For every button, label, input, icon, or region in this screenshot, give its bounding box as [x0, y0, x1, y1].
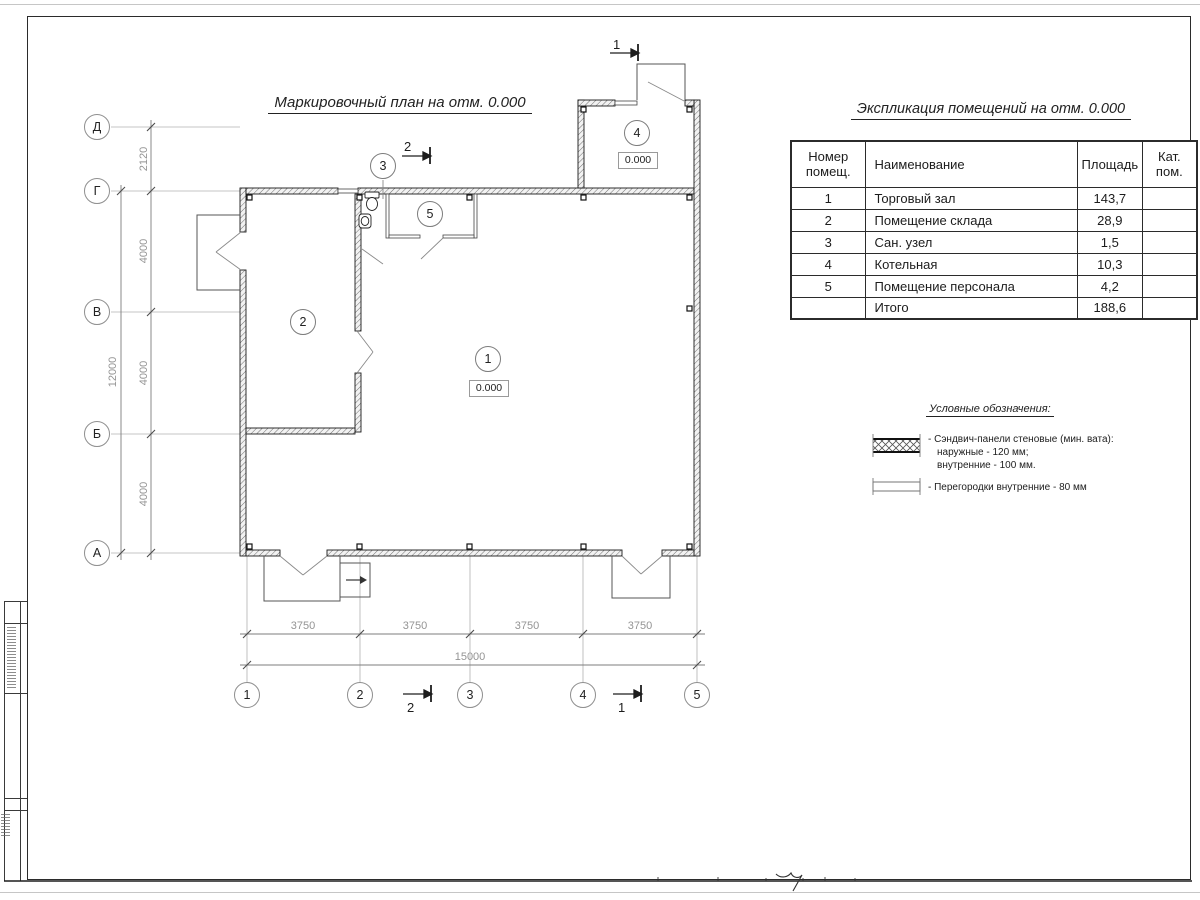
elevation-mark-room4: 0.000	[618, 152, 658, 169]
legend-item-sandwich-line1: - Сэндвич-панели стеновые (мин. вата):	[928, 433, 1114, 446]
section-mark-2-bottom: 2	[407, 700, 414, 715]
plan-title: Маркировочный план на отм. 0.000	[240, 94, 560, 114]
section-mark-1-bottom: 1	[618, 700, 625, 715]
cell-area: 4,2	[1077, 275, 1143, 297]
cell-name: Торговый зал	[865, 187, 1077, 209]
axis-bubble-d: Д	[84, 114, 110, 140]
dim-bottom-3750d: 3750	[618, 620, 662, 632]
cell-category	[1143, 209, 1197, 231]
table-row: 2 Помещение склада 28,9	[791, 209, 1197, 231]
cell-category	[1143, 297, 1197, 319]
axis-bubble-b: Б	[84, 421, 110, 447]
section-mark-1-top: 1	[613, 37, 620, 52]
porches	[197, 64, 685, 601]
room-bubble-5: 5	[417, 201, 443, 227]
room-bubble-1: 1	[475, 346, 501, 372]
cell-category	[1143, 253, 1197, 275]
col-header-number: Номер помещ.	[791, 141, 865, 187]
axis-bubble-3: 3	[457, 682, 483, 708]
cell-number: 4	[791, 253, 865, 275]
cell-total-area: 188,6	[1077, 297, 1143, 319]
table-row: 3 Сан. узел 1,5	[791, 231, 1197, 253]
axis-lines	[111, 127, 697, 682]
cell-category	[1143, 187, 1197, 209]
cell-number: 5	[791, 275, 865, 297]
legend-item-sandwich-line2: наружные - 120 мм;	[937, 446, 1028, 459]
cell-category	[1143, 275, 1197, 297]
drawing-sheet: Маркировочный план на отм. 0.000 Д Г В Б…	[0, 0, 1200, 900]
signature-scribble	[776, 873, 802, 891]
dim-left-4000a: 4000	[138, 231, 150, 271]
dim-bottom-total-15000: 15000	[440, 651, 500, 663]
cell-area: 143,7	[1077, 187, 1143, 209]
table-total-row: Итого 188,6	[791, 297, 1197, 319]
sink-icon	[359, 214, 371, 228]
dim-left-4000c: 4000	[138, 474, 150, 514]
dimension-ticks	[117, 123, 701, 669]
col-header-name: Наименование	[865, 141, 1077, 187]
axis-bubble-v: В	[84, 299, 110, 325]
door-swings	[216, 82, 686, 575]
cell-number: 2	[791, 209, 865, 231]
schedule-title: Экспликация помещений на отм. 0.000	[790, 101, 1192, 120]
col-header-category: Кат. пом.	[1143, 141, 1197, 187]
room-bubble-3: 3	[370, 153, 396, 179]
cell-total-label: Итого	[865, 297, 1077, 319]
legend-title: Условные обозначения:	[905, 403, 1075, 417]
elevation-mark-room1: 0.000	[469, 380, 509, 397]
cell-number: 3	[791, 231, 865, 253]
ramp-arrow-icon	[346, 576, 367, 584]
room-bubble-2: 2	[290, 309, 316, 335]
legend-item-partition-line1: - Перегородки внутренние - 80 мм	[928, 481, 1087, 494]
cell-number: 1	[791, 187, 865, 209]
table-row: 5 Помещение персонала 4,2	[791, 275, 1197, 297]
legend-partition-symbol	[873, 478, 920, 495]
axis-bubble-2: 2	[347, 682, 373, 708]
dim-left-4000b: 4000	[138, 353, 150, 393]
cell-name: Помещение персонала	[865, 275, 1077, 297]
section-arrows	[402, 44, 642, 702]
axis-bubble-5: 5	[684, 682, 710, 708]
room-schedule-table: Номер помещ. Наименование Площадь Кат. п…	[790, 140, 1198, 320]
cell-name: Котельная	[865, 253, 1077, 275]
room-bubble-4: 4	[624, 120, 650, 146]
dim-bottom-3750c: 3750	[505, 620, 549, 632]
section-mark-2-top: 2	[404, 139, 411, 154]
dim-bottom-3750b: 3750	[393, 620, 437, 632]
cell-area: 1,5	[1077, 231, 1143, 253]
col-header-area: Площадь	[1077, 141, 1143, 187]
schedule-header-row: Номер помещ. Наименование Площадь Кат. п…	[791, 141, 1197, 187]
cell-name: Сан. узел	[865, 231, 1077, 253]
cell-category	[1143, 231, 1197, 253]
dim-left-2120: 2120	[138, 139, 150, 179]
axis-bubble-1: 1	[234, 682, 260, 708]
dim-left-total-12000: 12000	[107, 342, 119, 402]
cell-name: Помещение склада	[865, 209, 1077, 231]
legend-sandwich-symbol	[873, 434, 920, 457]
axis-bubble-g: Г	[84, 178, 110, 204]
toilet-icon	[365, 192, 379, 211]
dim-bottom-3750a: 3750	[281, 620, 325, 632]
axis-bubble-4: 4	[570, 682, 596, 708]
title-block-line	[4, 873, 1192, 891]
cell-number	[791, 297, 865, 319]
cell-area: 10,3	[1077, 253, 1143, 275]
axis-bubble-a: А	[84, 540, 110, 566]
dimension-lines	[121, 120, 705, 665]
cell-area: 28,9	[1077, 209, 1143, 231]
table-row: 4 Котельная 10,3	[791, 253, 1197, 275]
legend-item-sandwich-line3: внутренние - 100 мм.	[937, 459, 1036, 472]
table-row: 1 Торговый зал 143,7	[791, 187, 1197, 209]
